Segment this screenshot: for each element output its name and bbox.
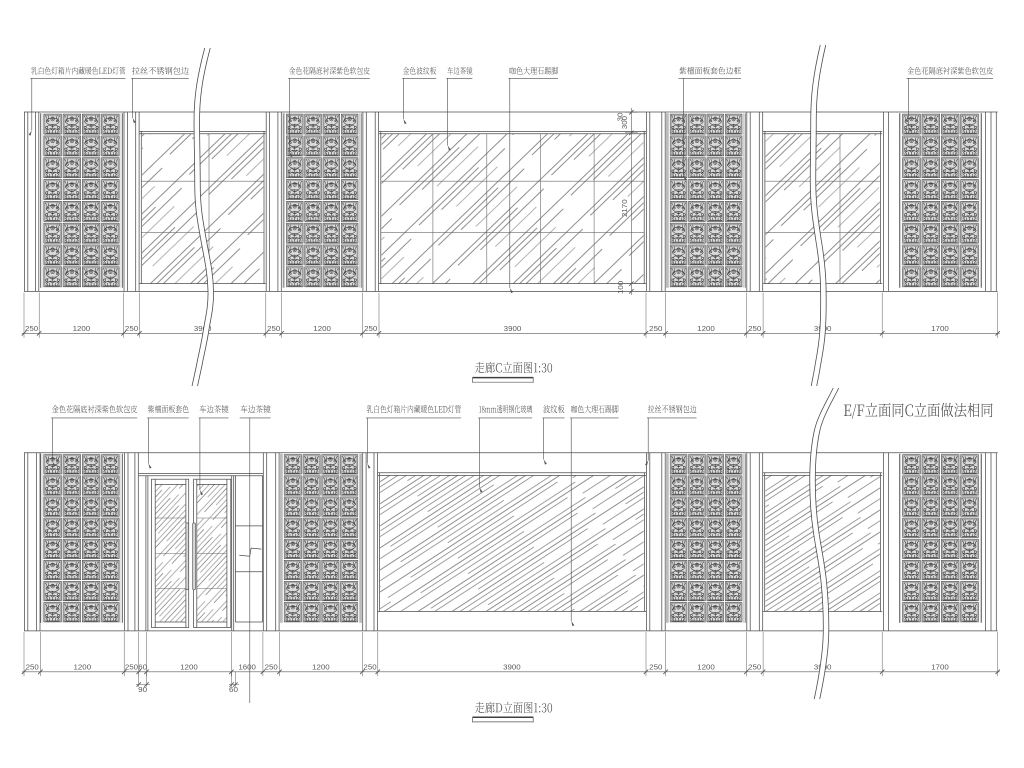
svg-text:90: 90 xyxy=(138,685,147,694)
svg-text:1200: 1200 xyxy=(180,662,198,671)
svg-text:250: 250 xyxy=(125,324,138,333)
svg-text:250: 250 xyxy=(267,324,280,333)
svg-text:3900: 3900 xyxy=(503,662,521,671)
svg-text:1200: 1200 xyxy=(313,324,331,333)
svg-text:1200: 1200 xyxy=(74,662,92,671)
svg-text:1200: 1200 xyxy=(697,324,715,333)
svg-text:250: 250 xyxy=(364,324,377,333)
svg-text:2170: 2170 xyxy=(620,199,629,217)
svg-text:1200: 1200 xyxy=(312,662,330,671)
svg-text:250: 250 xyxy=(125,662,138,671)
svg-text:1200: 1200 xyxy=(73,324,91,333)
svg-text:250: 250 xyxy=(26,662,39,671)
svg-text:60: 60 xyxy=(138,662,147,671)
svg-text:250: 250 xyxy=(649,324,662,333)
svg-text:1200: 1200 xyxy=(697,662,715,671)
svg-text:100: 100 xyxy=(616,281,625,294)
svg-text:1700: 1700 xyxy=(931,324,949,333)
svg-text:1600: 1600 xyxy=(238,662,256,671)
svg-text:250: 250 xyxy=(25,324,38,333)
svg-text:60: 60 xyxy=(229,685,238,694)
svg-text:250: 250 xyxy=(363,662,376,671)
svg-text:1700: 1700 xyxy=(931,662,949,671)
svg-text:250: 250 xyxy=(748,324,761,333)
svg-text:3900: 3900 xyxy=(504,324,522,333)
svg-text:250: 250 xyxy=(265,662,278,671)
svg-text:250: 250 xyxy=(649,662,662,671)
svg-text:30: 30 xyxy=(616,113,625,122)
svg-text:250: 250 xyxy=(748,662,761,671)
